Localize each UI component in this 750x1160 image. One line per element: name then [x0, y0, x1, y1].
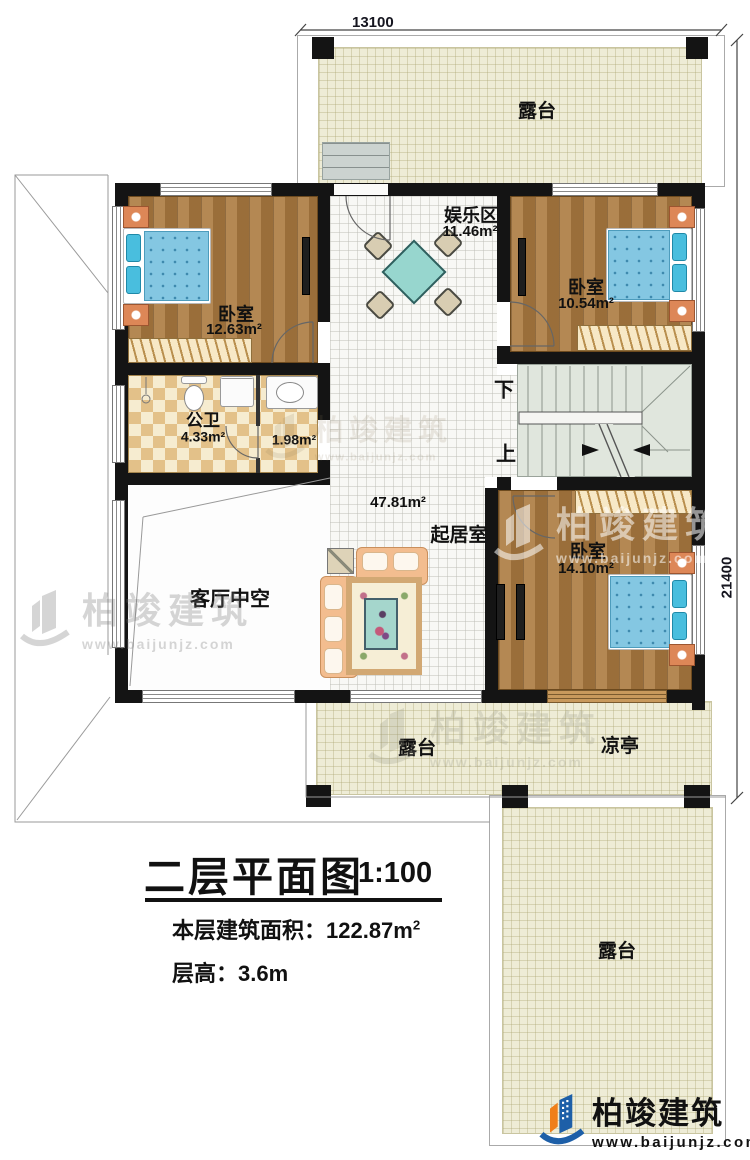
- living-area: 47.81m²: [370, 495, 426, 511]
- bed-bottom-mattress: [610, 576, 670, 648]
- tv-living: [496, 584, 505, 640]
- pillow: [672, 233, 687, 261]
- window-bedroomL-top: [160, 183, 272, 196]
- sofa-pillow: [393, 552, 419, 571]
- wardrobe-bedroomB: [575, 490, 692, 514]
- wall-bedroomL-entertainment: [318, 196, 330, 322]
- pillow: [126, 234, 141, 262]
- brand-logo-icon: [538, 1088, 586, 1148]
- floor-plan-canvas: 露台 娱乐区 11.46m² 卧室 12.63m² 卧室 10.54m² 公卫 …: [0, 0, 750, 1160]
- washing-machine: [220, 376, 254, 407]
- watermark-logo-icon: [18, 586, 74, 648]
- window-void-left: [112, 500, 125, 648]
- floor-area-text: 本层建筑面积：122.87m: [172, 918, 413, 943]
- window-bathroom-left: [112, 385, 125, 463]
- stairs-up-label: 上: [496, 445, 516, 466]
- pillow: [126, 266, 141, 294]
- wardrobe-bedroomL: [128, 338, 252, 363]
- wall-bathroom-divider-upper: [256, 375, 260, 426]
- terrace-strip-floor: [316, 701, 712, 795]
- pillow: [672, 580, 687, 608]
- bedroomB-label: 卧室: [570, 543, 606, 562]
- bedroomB-area: 14.10m²: [558, 561, 614, 577]
- tv-bedroomL: [302, 237, 310, 295]
- column: [684, 785, 710, 808]
- corner-table: [327, 548, 354, 574]
- terrace-strip-label: 露台: [398, 739, 436, 759]
- terrace-bottom-right-label: 露台: [598, 942, 636, 962]
- slider-bedroomB-terrace: [547, 690, 667, 703]
- slider-living-terrace: [350, 690, 482, 703]
- wall-stairs-bedroomB-left: [497, 477, 511, 490]
- sofa-pillow: [324, 648, 343, 674]
- nightstand: [669, 644, 695, 666]
- wall-entertainment-bedroomR-upper: [497, 183, 510, 302]
- bathroom-area: 4.33m²: [181, 430, 225, 445]
- plan-scale: 1:100: [358, 857, 432, 890]
- bathroom-annex-area: 1.98m²: [272, 433, 316, 448]
- floor-area-line: 本层建筑面积：122.87m2: [172, 913, 420, 945]
- wall-bathroom-living-upper: [318, 375, 330, 420]
- sofa-pillow: [362, 552, 388, 571]
- plan-title: 二层平面图: [144, 843, 364, 903]
- brand-logo: 柏竣建筑 www.baijunjz.com: [538, 1088, 750, 1151]
- floor-height-line: 层高：3.6m: [172, 956, 288, 988]
- sofa-pillow: [324, 584, 343, 610]
- toilet-bowl: [184, 385, 204, 411]
- brand-name: 柏竣建筑: [592, 1088, 750, 1133]
- terrace-bottom-right-floor: [502, 807, 713, 1134]
- door-opening-terrace: [334, 184, 388, 195]
- wall-bathroom-void: [115, 473, 330, 485]
- window-bedroomR-top: [552, 183, 658, 196]
- toilet-tank: [181, 376, 207, 384]
- wall-bedroomR-stairs: [497, 352, 705, 364]
- brand-url: www.baijunjz.com: [592, 1134, 750, 1151]
- tv-bedroomB: [516, 584, 525, 640]
- column: [312, 37, 334, 59]
- bed-left-mattress: [144, 231, 209, 301]
- corridor-floor: [330, 375, 517, 477]
- void-area: [128, 485, 330, 690]
- living-label: 起居室: [430, 526, 487, 546]
- bedroomL-area: 12.63m²: [206, 322, 262, 338]
- window-void-bottom: [142, 690, 295, 703]
- wall-stairs-bedroomB-right: [557, 477, 705, 490]
- bed-right-mattress: [608, 230, 670, 300]
- terrace-top-label: 露台: [518, 102, 556, 122]
- nightstand: [669, 206, 695, 228]
- column: [686, 37, 708, 59]
- tv-bedroomR: [518, 238, 526, 296]
- wardrobe-bedroomR: [577, 325, 692, 351]
- stairs-down-label: 下: [494, 381, 514, 402]
- void-label: 客厅中空: [190, 590, 270, 611]
- pavilion-label: 凉亭: [601, 737, 639, 757]
- pillow: [672, 264, 687, 292]
- stairs-area: [517, 364, 692, 477]
- wall-bathroom-divider-lower: [256, 458, 260, 473]
- sink-basin: [276, 382, 304, 403]
- wall-bedroomL-bathroom: [115, 363, 330, 375]
- coffee-table: [364, 598, 398, 650]
- dimension-right: 21400: [719, 538, 736, 618]
- sofa-pillow: [324, 616, 343, 642]
- nightstand: [669, 300, 695, 322]
- column: [306, 785, 331, 807]
- entertainment-area: 11.46m²: [442, 224, 497, 240]
- nightstand: [123, 304, 149, 326]
- dimension-top: 13100: [352, 14, 394, 31]
- nightstand: [123, 206, 149, 228]
- column: [502, 785, 528, 808]
- pillow: [672, 612, 687, 640]
- floor-area-sup: 2: [413, 918, 420, 933]
- title-underline: [145, 898, 442, 902]
- nightstand: [669, 552, 695, 574]
- bedroomR-area: 10.54m²: [558, 296, 614, 312]
- bathroom-label: 公卫: [186, 412, 220, 430]
- terrace-steps: [322, 142, 390, 180]
